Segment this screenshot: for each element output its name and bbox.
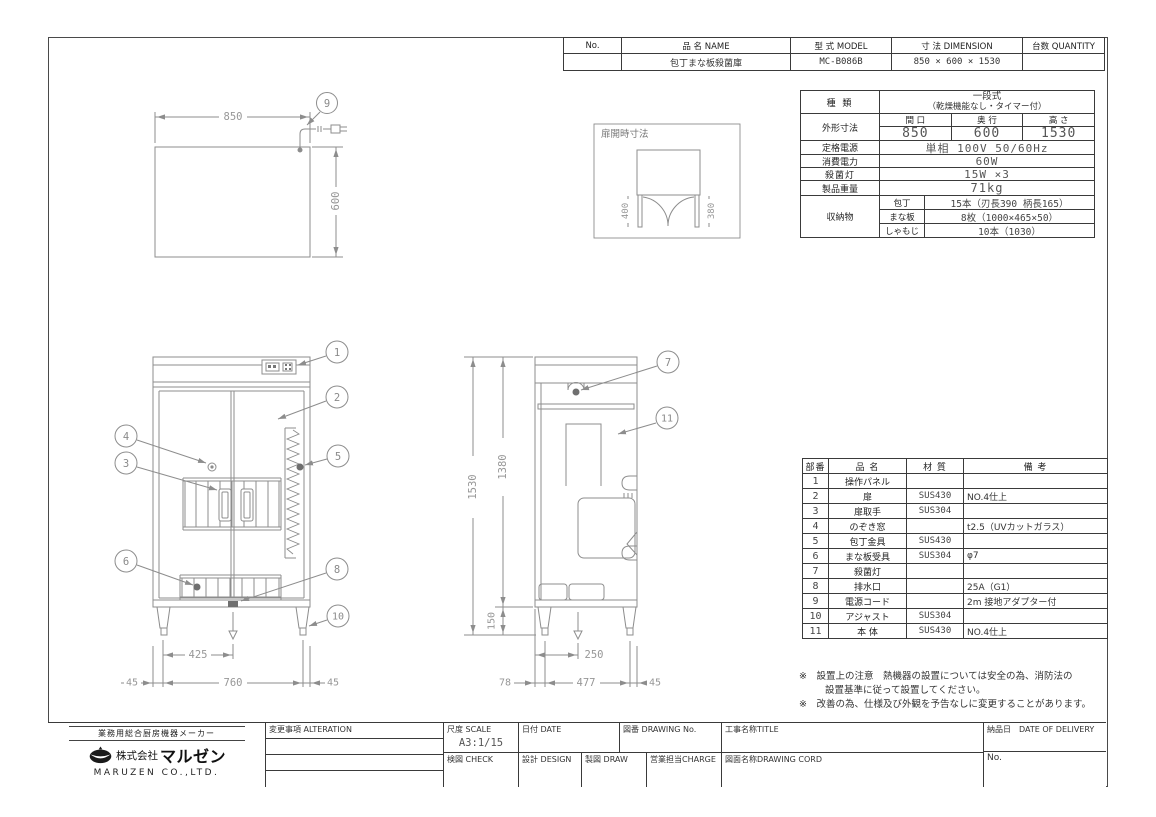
part-no: 3 [803, 504, 829, 519]
front-view-drawing: 425 760 45 45 1 2 [115, 341, 349, 689]
svg-text:4: 4 [123, 431, 129, 443]
drawing-info-section: 尺度 SCALE A3:1/15 日付 DATE 図番 DRAWING No. … [443, 723, 983, 787]
drawing-sheet: 850 600 [0, 0, 1156, 817]
alteration-row [266, 755, 443, 771]
svg-text:11: 11 [661, 414, 673, 425]
design-label: 設計 DESIGN [518, 753, 581, 787]
parts-note-label: 備 考 [964, 459, 1107, 474]
part-name: 包丁金具 [829, 534, 907, 549]
dim-760: 760 [224, 677, 243, 689]
scale-value: A3:1/15 [447, 737, 515, 749]
spec-depth-value: 600 [951, 127, 1023, 140]
storage-row: しゃもじ 10本（1030） [880, 223, 1094, 237]
dim-1530: 1530 [467, 474, 479, 499]
part-no: 8 [803, 579, 829, 594]
part-no: 11 [803, 624, 829, 638]
dim-150: 150 [487, 612, 498, 630]
part-no: 10 [803, 609, 829, 624]
parts-no-label: 部番 [803, 459, 829, 474]
part-no: 2 [803, 489, 829, 504]
part-material: SUS430 [907, 489, 964, 504]
spec-type-value: 一段式 [973, 92, 1002, 102]
drawing-cord-label: 図面名称DRAWING CORD [721, 753, 983, 787]
part-no: 7 [803, 564, 829, 579]
part-note [964, 504, 1107, 519]
scale-cell: 尺度 SCALE A3:1/15 [444, 723, 518, 752]
svg-text:9: 9 [324, 98, 330, 110]
power-cord [298, 125, 347, 152]
dim-1380: 1380 [497, 454, 509, 479]
storage-row: まな板 8枚（1000×465×50） [880, 209, 1094, 223]
part-note [964, 474, 1107, 489]
header-no-label: No. [564, 38, 621, 53]
delivery-no-label: No. [984, 752, 1106, 787]
installation-notes: ※ 設置上の注意 熱機器の設置については安全の為、消防法の 設置基準に従って設置… [799, 670, 1113, 712]
part-note [964, 534, 1107, 549]
part-material: SUS304 [907, 549, 964, 564]
header-no-value [564, 54, 621, 70]
part-name: のぞき窓 [829, 519, 907, 534]
dim-600: 600 [330, 192, 342, 211]
part-name: 電源コード [829, 594, 907, 609]
spec-lamp-value: 15W ×3 [880, 168, 1094, 180]
maruzen-logo-icon [87, 746, 114, 764]
part-note [964, 564, 1107, 579]
part-name: 扉取手 [829, 504, 907, 519]
part-name: 操作パネル [829, 474, 907, 489]
scale-label: 尺度 SCALE [447, 724, 515, 735]
svg-text:7: 7 [665, 357, 671, 369]
title-block: 業務用総合厨房機器メーカー 株式会社 マルゼン MARUZEN CO.,LTD.… [48, 722, 1106, 787]
note-line-2: 設置基準に従って設置してください。 [799, 684, 1113, 698]
part-note: t2.5（UVカットガラス） [964, 519, 1107, 534]
part-note: φ7 [964, 549, 1107, 564]
spec-weight-label: 製品重量 [801, 181, 880, 195]
part-name: 殺菌灯 [829, 564, 907, 579]
maker-section: 業務用総合厨房機器メーカー 株式会社 マルゼン MARUZEN CO.,LTD. [48, 723, 265, 787]
part-no: 9 [803, 594, 829, 609]
part-no: 4 [803, 519, 829, 534]
alteration-label: 変更事項 ALTERATION [266, 723, 443, 739]
dim-45-right: 45 [327, 678, 339, 689]
spec-power-label: 定格電源 [801, 141, 880, 154]
header-dimension-label: 寸 法 DIMENSION [891, 38, 1022, 53]
part-name: アジャスト [829, 609, 907, 624]
dim-400: 400 [621, 203, 631, 219]
part-material [907, 579, 964, 594]
part-note: 25A（G1） [964, 579, 1107, 594]
spec-width-label: 間 口 [880, 114, 951, 126]
part-material [907, 594, 964, 609]
spec-outerdim-label: 外形寸法 [801, 114, 880, 140]
spec-width-value: 850 [880, 127, 951, 140]
door-handles [219, 489, 253, 521]
maker-tagline: 業務用総合厨房機器メーカー [69, 726, 245, 741]
parts-material-label: 材 質 [907, 459, 964, 474]
note-line-1: ※ 設置上の注意 熱機器の設置については安全の為、消防法の [799, 670, 1113, 684]
spec-table: 種 類 一段式 （乾燥機能なし・タイマー付） 外形寸法 間 口 奥 行 高 さ … [800, 90, 1095, 238]
part-name: まな板受具 [829, 549, 907, 564]
delivery-date-label: 納品日 DATE OF DELIVERY [984, 723, 1106, 752]
spec-depth-label: 奥 行 [951, 114, 1023, 126]
knife-holder-strip [285, 428, 299, 558]
dim-425: 425 [189, 649, 208, 661]
side-legs [538, 607, 636, 635]
parts-table: 部番 品 名 材 質 備 考 1 操作パネル 2 扉 SUS430 NO.4仕上… [802, 458, 1108, 639]
spec-wattage-value: 60W [880, 155, 1094, 167]
parts-name-label: 品 名 [829, 459, 907, 474]
header-name-label: 品 名 NAME [621, 38, 790, 53]
overall-dimensions: 850 × 600 × 1530 [891, 54, 1022, 70]
side-view-drawing: 1530 1380 150 [464, 351, 679, 689]
dim-477: 477 [577, 677, 596, 689]
dim-250: 250 [585, 649, 604, 661]
product-name: 包丁まな板殺菌庫 [621, 54, 790, 70]
dim-45-left: 45 [126, 678, 138, 689]
part-name: 本 体 [829, 624, 907, 638]
dim-850: 850 [224, 111, 243, 123]
door-open-detail: 扉開時寸法 400 380 [594, 124, 740, 238]
draw-label: 製図 DRAW [581, 753, 646, 787]
svg-text:2: 2 [334, 392, 340, 404]
control-panel [262, 360, 296, 374]
spec-lamp-label: 殺菌灯 [801, 168, 880, 180]
company-prefix: 株式会社 [116, 748, 158, 763]
spec-weight-value: 71kg [880, 181, 1094, 195]
part-name: 扉 [829, 489, 907, 504]
spec-storage-label: 収納物 [801, 196, 880, 237]
spec-wattage-label: 消費電力 [801, 155, 880, 167]
part-material: SUS430 [907, 624, 964, 638]
svg-text:10: 10 [332, 612, 344, 623]
part-note [964, 609, 1107, 624]
drawing-no-label: 図番 DRAWING No. [619, 723, 721, 752]
part-material [907, 564, 964, 579]
part-material: SUS430 [907, 534, 964, 549]
drain-outlet [228, 601, 238, 607]
spec-power-value: 単相 100V 50/60Hz [880, 141, 1094, 154]
part-name: 排水口 [829, 579, 907, 594]
dim-78: 78 [499, 678, 511, 689]
title-label: 工事名称TITLE [721, 723, 983, 752]
model-number: MC-B086B [790, 54, 891, 70]
alteration-row [266, 739, 443, 755]
part-note: NO.4仕上 [964, 624, 1107, 638]
alteration-section: 変更事項 ALTERATION [265, 723, 443, 787]
svg-text:5: 5 [335, 451, 341, 463]
company-logotype: マルゼン [160, 743, 226, 767]
note-line-3: ※ 改善の為、仕様及び外観を予告なしに変更することがあります。 [799, 698, 1113, 712]
header-model-label: 型 式 MODEL [790, 38, 891, 53]
svg-text:3: 3 [123, 458, 129, 470]
header-quantity-label: 台数 QUANTITY [1022, 38, 1104, 53]
top-view-drawing: 850 600 [155, 93, 347, 258]
svg-text:8: 8 [334, 564, 340, 576]
check-label: 検図 CHECK [444, 753, 518, 787]
dim-380: 380 [707, 203, 717, 219]
spec-type-value-note: （乾燥機能なし・タイマー付） [927, 102, 1046, 112]
part-note: 2m 接地アダプター付 [964, 594, 1107, 609]
part-material: SUS304 [907, 609, 964, 624]
part-no: 1 [803, 474, 829, 489]
dim-45-rear: 45 [649, 678, 661, 689]
svg-text:6: 6 [123, 556, 129, 568]
part-no: 5 [803, 534, 829, 549]
rear-housing [578, 493, 637, 558]
delivery-section: 納品日 DATE OF DELIVERY No. [983, 723, 1106, 787]
part-no: 6 [803, 549, 829, 564]
date-label: 日付 DATE [518, 723, 619, 752]
company-name-en: MARUZEN CO.,LTD. [94, 768, 220, 778]
door-detail-title: 扉開時寸法 [601, 128, 649, 140]
header-quantity-value [1022, 54, 1104, 70]
svg-text:1: 1 [334, 347, 340, 359]
alteration-row [266, 771, 443, 787]
spec-height-label: 高 さ [1022, 114, 1094, 126]
part-material [907, 519, 964, 534]
spec-height-value: 1530 [1022, 127, 1094, 140]
spec-type-label: 種 類 [801, 91, 880, 113]
storage-row: 包丁 15本（刃長390 柄長165） [880, 196, 1094, 209]
part-note: NO.4仕上 [964, 489, 1107, 504]
knife-rack [183, 478, 281, 530]
part-material [907, 474, 964, 489]
header-table: No. 品 名 NAME 型 式 MODEL 寸 法 DIMENSION 台数 … [563, 37, 1105, 71]
charge-label: 営業担当CHARGE [646, 753, 721, 787]
part-material: SUS304 [907, 504, 964, 519]
